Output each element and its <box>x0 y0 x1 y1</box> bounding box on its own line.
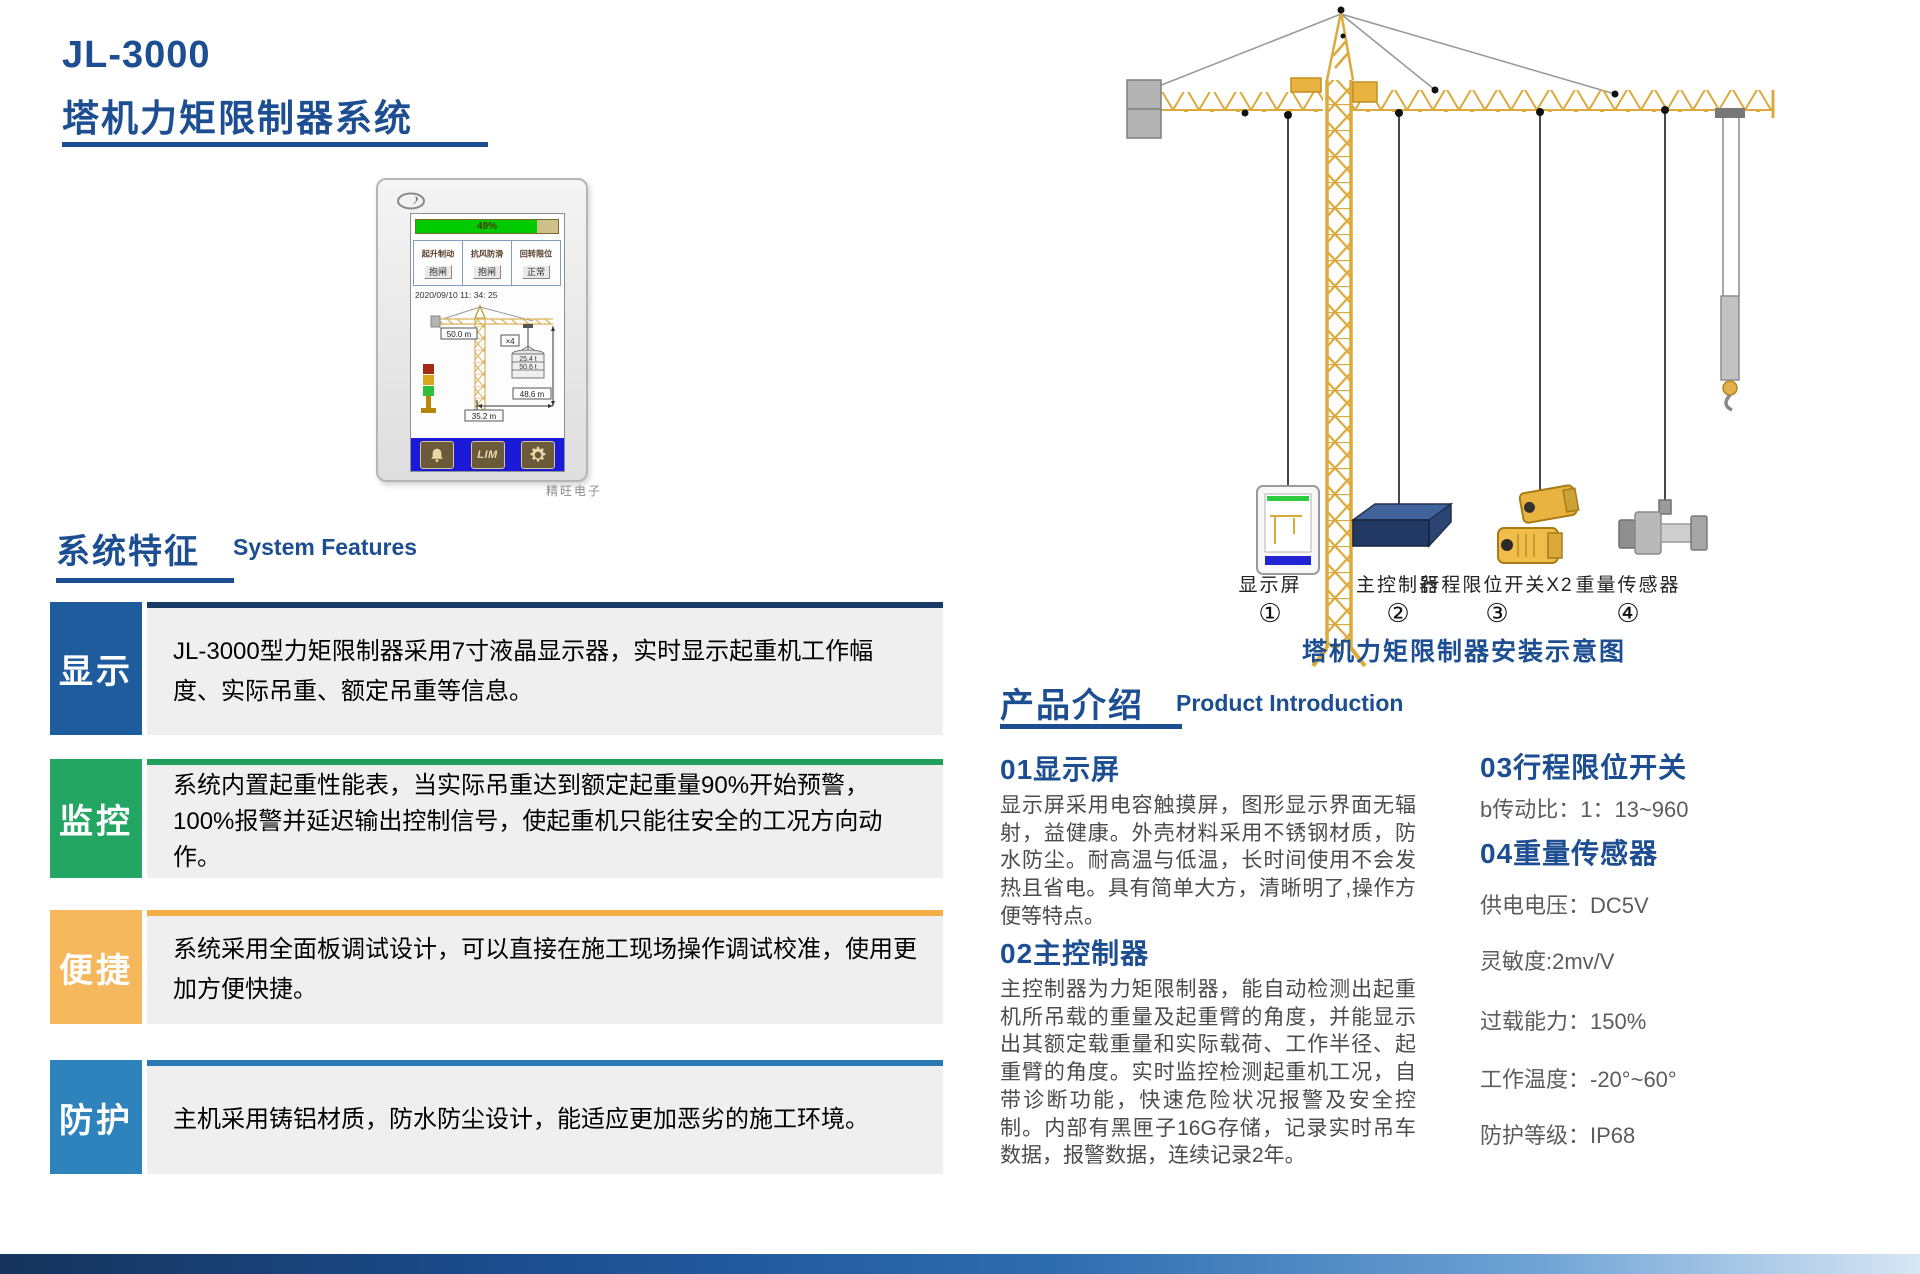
feature-tag: 防护 <box>50 1060 142 1174</box>
apex <box>1327 12 1353 80</box>
intro-s1-body: 显示屏采用电容触摸屏，图形显示界面无辐射，益健康。外壳材料采用不锈钢材质，防水防… <box>1000 792 1416 931</box>
trolley <box>1715 108 1745 118</box>
component-label-weight-sensor: 重量传感器 <box>1575 570 1680 597</box>
mast <box>1327 80 1351 648</box>
status-col-wind-brake: 抗风防滑 抱闸 <box>463 241 512 285</box>
feature-text: JL-3000型力矩限制器采用7寸液晶显示器，实时显示起重机工作幅度、实际吊重、… <box>147 602 943 735</box>
feature-row-convenient: 便捷 系统采用全面板调试设计，可以直接在施工现场操作调试校准，使用更加方便快捷。 <box>50 910 943 1024</box>
diagram-caption: 塔机力矩限制器安装示意图 <box>1302 632 1626 668</box>
display-device-image: 49% 起升制动 抱闸 抗风防滑 抱闸 回转限位 正常 2020/09/10 1… <box>376 178 588 482</box>
lim-label: LIM <box>477 449 497 461</box>
device-brand-text: 精旺电子 <box>546 482 602 499</box>
component-label-display: 显示屏 <box>1238 570 1301 597</box>
component-label-limit-switch: 行程限位开关X2 <box>1420 570 1573 597</box>
features-heading-en: System Features <box>233 534 417 561</box>
intro-s1-title: 01显示屏 <box>1000 748 1120 788</box>
feature-tag: 监控 <box>50 759 142 878</box>
screen-jib-length: 50.0 m <box>447 330 472 339</box>
gear-icon <box>528 445 548 465</box>
title-underline <box>62 142 488 147</box>
intro-s3-title: 03行程限位开关 <box>1480 746 1687 786</box>
status-label: 回转限位 <box>520 247 552 259</box>
component-number-4: ④ <box>1616 598 1639 629</box>
screen-datetime: 2020/09/10 11: 34: 25 <box>415 290 498 300</box>
status-col-hoist-brake: 起升制动 抱闸 <box>414 241 463 285</box>
jib <box>1351 90 1773 112</box>
footer-gradient-bar <box>0 1254 1920 1274</box>
screen-load-rated: 50.6 t <box>519 364 537 371</box>
feature-tag: 显示 <box>50 602 142 735</box>
settings-button <box>521 441 555 469</box>
tie-rods <box>1159 14 1615 94</box>
lim-button: LIM <box>471 441 505 469</box>
component-limit-switch <box>1498 484 1579 563</box>
feature-text: 系统内置起重性能表，当实际吊重达到额定起重量90%开始预警，100%报警并延迟输… <box>147 759 943 878</box>
hook <box>1726 395 1732 410</box>
screen-rope-ratio: ×4 <box>505 337 515 346</box>
hook-ball <box>1723 381 1737 395</box>
features-underline <box>56 578 234 583</box>
brochure-page: JL-3000 塔机力矩限制器系统 49% 起升制动 抱闸 抗风防滑 抱闸 <box>0 0 1920 1274</box>
product-model: JL-3000 <box>62 34 211 77</box>
intro-s4-title: 04重量传感器 <box>1480 832 1658 872</box>
status-button: 抱闸 <box>473 265 501 279</box>
spec-temperature: 工作温度：-20°~60° <box>1480 1062 1677 1094</box>
bell-icon <box>427 445 447 465</box>
screen-load-actual: 25.4 t <box>519 356 537 363</box>
counterweight <box>1127 80 1161 138</box>
screen-button-bar: LIM <box>411 438 564 471</box>
screen-radius-value: 35.2 m <box>472 412 497 421</box>
component-number-1: ① <box>1258 598 1281 629</box>
spec-voltage: 供电电压：DC5V <box>1480 888 1649 920</box>
intro-heading-en: Product Introduction <box>1176 690 1403 717</box>
intro-s2-body: 主控制器为力矩限制器，能自动检测出起重机所吊载的重量及起重臂的角度，并能显示出其… <box>1000 976 1416 1170</box>
counter-jib <box>1157 92 1323 112</box>
intro-s2-title: 02主控制器 <box>1000 932 1149 972</box>
intro-heading-cn: 产品介绍 <box>1000 678 1144 727</box>
status-table: 起升制动 抱闸 抗风防滑 抱闸 回转限位 正常 <box>413 240 561 286</box>
intro-underline <box>1000 724 1182 729</box>
hoist-ropes <box>1723 118 1739 296</box>
status-label: 起升制动 <box>422 247 454 259</box>
status-label: 抗风防滑 <box>471 247 503 259</box>
component-number-2: ② <box>1386 598 1409 629</box>
screen-crane-schematic: 25.4 t 50.6 t 50.0 m ×4 48.6 m 35.2 m <box>413 302 562 434</box>
spec-sensitivity: 灵敏度:2mv/V <box>1480 944 1614 976</box>
status-button: 抱闸 <box>424 265 452 279</box>
progress-label: 49% <box>416 221 558 232</box>
brand-logo <box>396 192 426 210</box>
feature-row-display: 显示 JL-3000型力矩限制器采用7寸液晶显示器，实时显示起重机工作幅度、实际… <box>50 602 943 735</box>
component-display <box>1257 486 1319 574</box>
hook-block <box>1721 296 1739 380</box>
load-progress-bar: 49% <box>415 219 559 234</box>
component-controller <box>1353 504 1451 546</box>
feature-tag: 便捷 <box>50 910 142 1024</box>
feature-text: 主机采用铸铝材质，防水防尘设计，能适应更加恶劣的施工环境。 <box>147 1060 943 1174</box>
feature-row-protect: 防护 主机采用铸铝材质，防水防尘设计，能适应更加恶劣的施工环境。 <box>50 1060 943 1174</box>
status-col-slew-limit: 回转限位 正常 <box>512 241 560 285</box>
features-heading-cn: 系统特征 <box>56 524 200 573</box>
status-button: 正常 <box>522 265 550 279</box>
feature-row-monitor: 监控 系统内置起重性能表，当实际吊重达到额定起重量90%开始预警，100%报警并… <box>50 759 943 878</box>
screen-height-value: 48.6 m <box>520 390 545 399</box>
component-weight-sensor <box>1619 500 1707 554</box>
machinery-house <box>1291 78 1321 92</box>
alarm-button <box>420 441 454 469</box>
spec-overload: 过载能力：150% <box>1480 1004 1646 1036</box>
feature-text: 系统采用全面板调试设计，可以直接在施工现场操作调试校准，使用更加方便快捷。 <box>147 910 943 1024</box>
signal-light-icon <box>421 364 436 413</box>
intro-s3-spec: b传动比：1：13~960 <box>1480 792 1689 824</box>
operator-cab <box>1353 82 1377 102</box>
component-number-3: ③ <box>1485 598 1508 629</box>
device-screen: 49% 起升制动 抱闸 抗风防滑 抱闸 回转限位 正常 2020/09/10 1… <box>410 213 565 472</box>
page-title: 塔机力矩限制器系统 <box>62 88 413 142</box>
spec-ip-rating: 防护等级：IP68 <box>1480 1118 1635 1150</box>
